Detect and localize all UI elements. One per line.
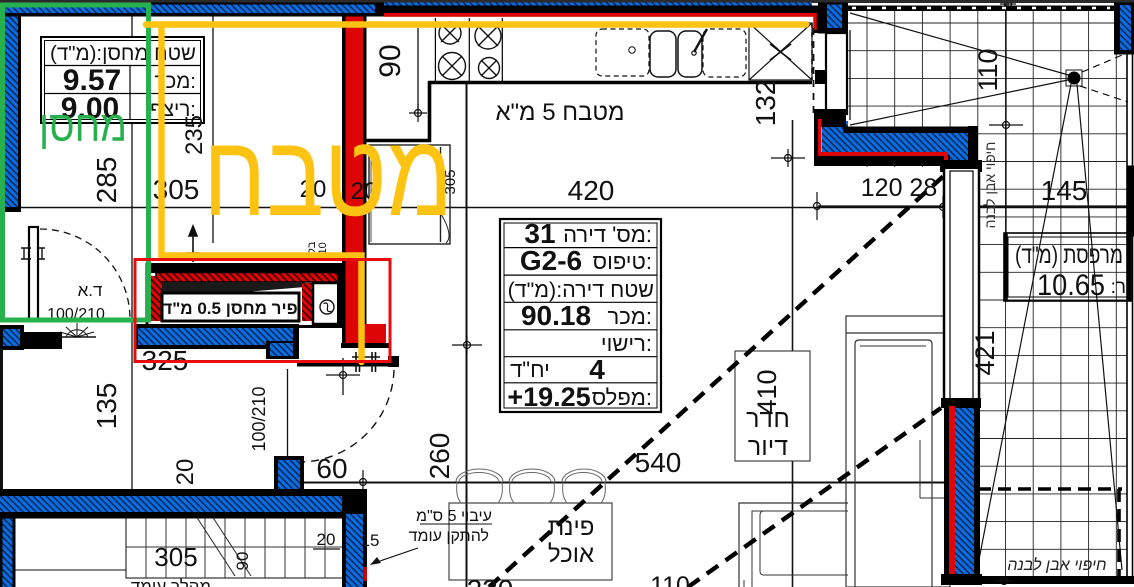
- svg-text:ד.א: ד.א: [78, 281, 103, 300]
- svg-text:מהלך עומד: מהלך עומד: [131, 577, 211, 587]
- svg-text:110: 110: [650, 572, 690, 587]
- svg-text:60: 60: [316, 453, 347, 484]
- svg-text:חיפוי אבן לבנה: חיפוי אבן לבנה: [1007, 556, 1106, 574]
- svg-text:90: 90: [233, 552, 252, 571]
- svg-text:מטבח 5 מ"א: מטבח 5 מ"א: [495, 99, 624, 126]
- svg-text:חיפוי אבן לבנה: חיפוי אבן לבנה: [982, 142, 998, 229]
- svg-text:20: 20: [317, 530, 336, 549]
- svg-text:100/210: 100/210: [249, 386, 269, 451]
- svg-text:דיור: דיור: [748, 433, 788, 461]
- svg-text:20: 20: [172, 459, 199, 486]
- svg-text:420: 420: [568, 175, 615, 206]
- svg-text:305: 305: [154, 542, 197, 572]
- svg-text:110: 110: [973, 48, 1003, 91]
- svg-text:חדר: חדר: [746, 405, 790, 433]
- svg-text:יח"ד: יח"ד: [510, 357, 550, 382]
- svg-text:540: 540: [635, 447, 682, 478]
- svg-text:4: 4: [589, 354, 605, 385]
- svg-text:אוכל: אוכל: [548, 541, 594, 568]
- svg-text:135: 135: [91, 383, 122, 430]
- svg-text:90: 90: [374, 44, 407, 77]
- svg-text:132: 132: [750, 80, 781, 127]
- svg-text:+19.25: +19.25: [507, 382, 590, 412]
- svg-text:421: 421: [970, 330, 1000, 375]
- svg-text:מס' דירה:: מס' דירה:: [563, 222, 652, 247]
- svg-text:שטח מחסן:(מ"ד): שטח מחסן:(מ"ד): [50, 42, 196, 65]
- svg-text:להתקן עומד: להתקן עומד: [409, 527, 489, 545]
- svg-text:מכר:: מכר:: [607, 304, 652, 329]
- svg-text:עיבוי 5 ס"מ: עיבוי 5 ס"מ: [416, 508, 492, 525]
- svg-text:285: 285: [91, 157, 122, 204]
- svg-text:פיר מחסן 0.5 מ"ד: פיר מחסן 0.5 מ"ד: [162, 299, 297, 318]
- svg-text:90.18: 90.18: [521, 300, 591, 331]
- svg-text:מרפסת (מ"ד): מרפסת (מ"ד): [1015, 242, 1123, 269]
- svg-text:15: 15: [361, 531, 380, 550]
- svg-text:120 28: 120 28: [861, 174, 937, 202]
- svg-text:10.65: 10.65: [1037, 269, 1105, 302]
- svg-text::ר: :ר: [1111, 277, 1126, 298]
- svg-text:מפלס:: מפלס:: [592, 385, 652, 410]
- svg-text:260: 260: [424, 433, 455, 480]
- svg-text:G2-6: G2-6: [520, 245, 582, 276]
- svg-text:רישוי:: רישוי:: [601, 331, 652, 356]
- svg-text:145: 145: [1041, 175, 1088, 206]
- svg-text:טיפוס:: טיפוס:: [593, 249, 652, 274]
- svg-text:שטח דירה:(מ"ד): שטח דירה:(מ"ד): [508, 278, 654, 302]
- svg-text:230: 230: [467, 574, 514, 587]
- svg-text:פינת: פינת: [548, 514, 595, 541]
- svg-text:מטבח: מטבח: [203, 110, 453, 240]
- svg-text:מחסן: מחסן: [39, 103, 127, 151]
